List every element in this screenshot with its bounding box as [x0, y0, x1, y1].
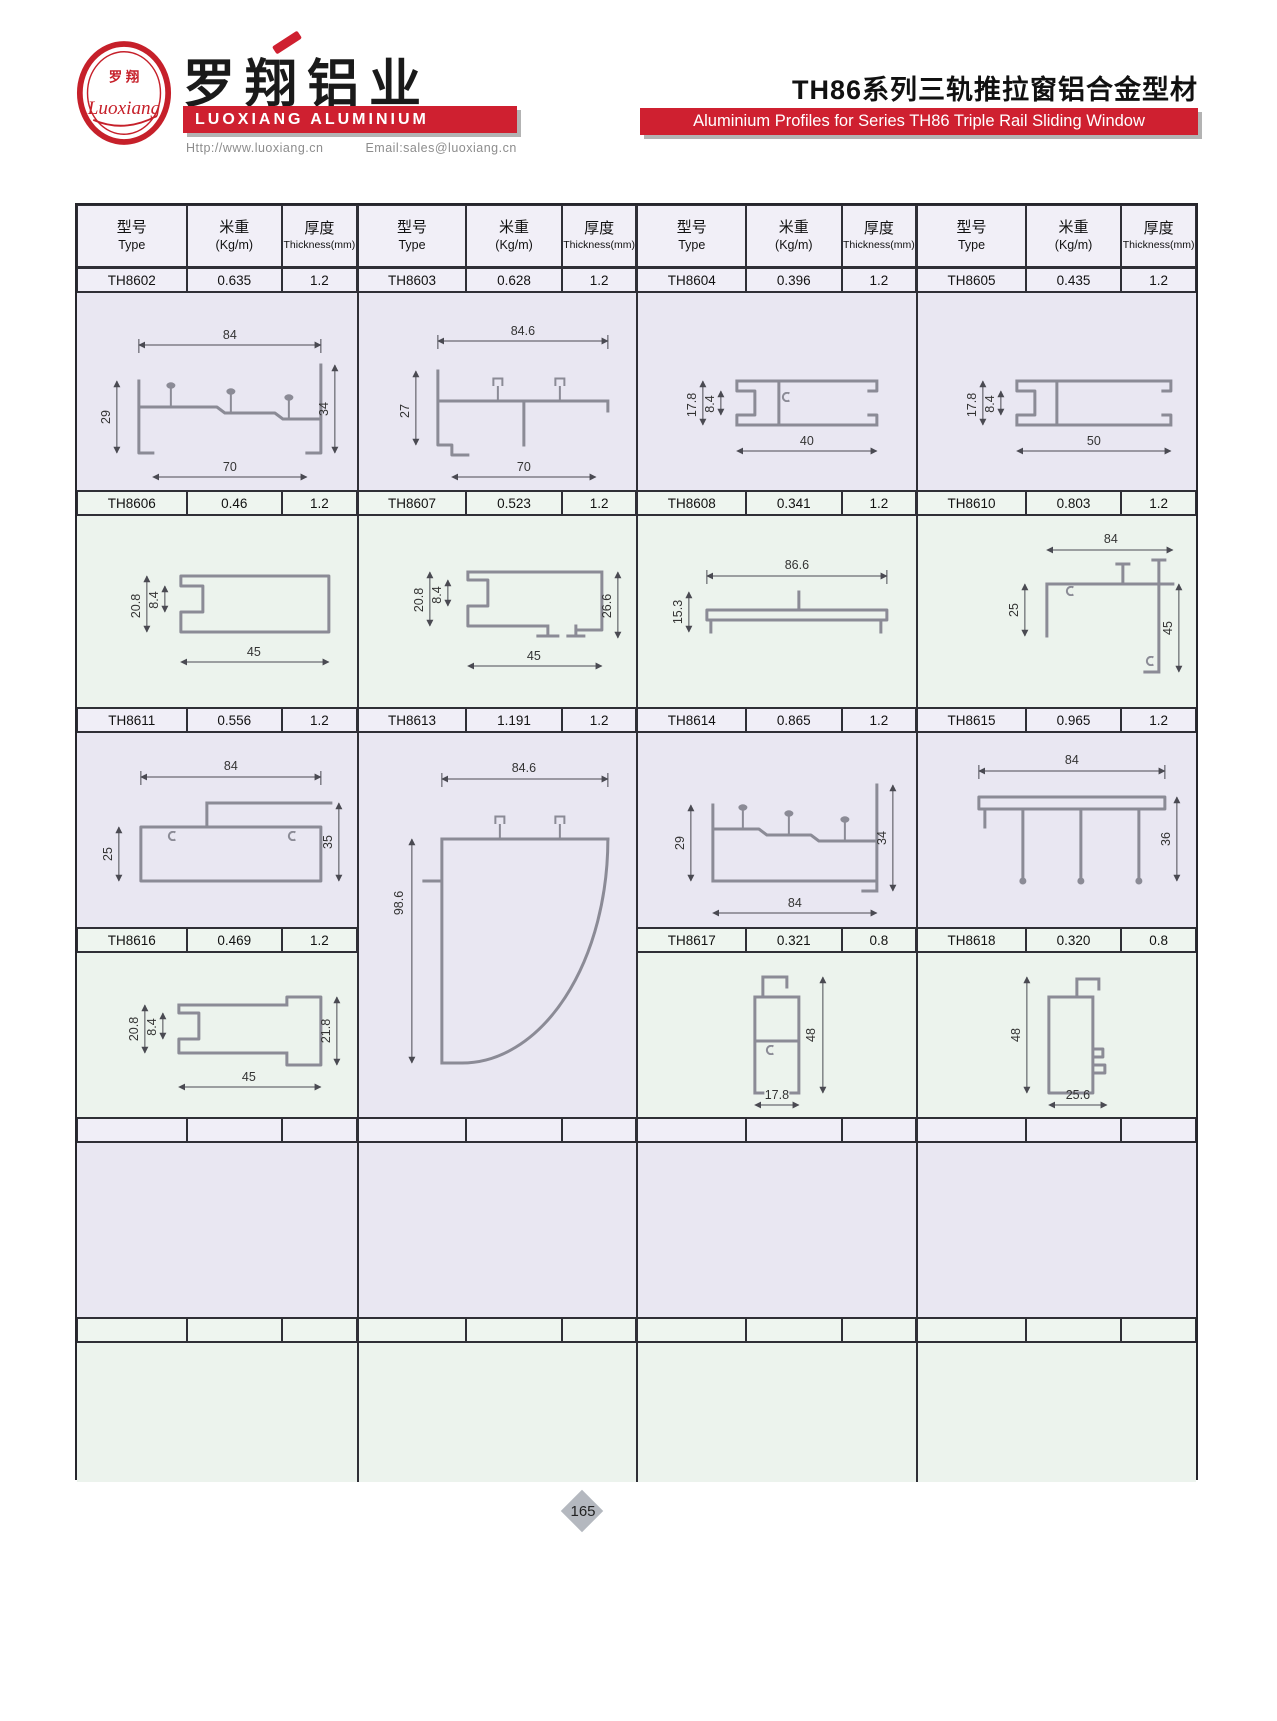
weight-cell: 0.321 — [746, 927, 842, 953]
col-header-weight: 米重(Kg/m) — [187, 205, 283, 267]
profile-drawing-th8615: 84 36 — [916, 733, 1196, 927]
type-cell: TH8605 — [916, 267, 1026, 293]
svg-text:8.4: 8.4 — [145, 1018, 159, 1035]
thickness-cell: 1.2 — [1121, 707, 1196, 733]
empty-cell — [916, 1117, 1026, 1143]
empty-cell — [1026, 1317, 1122, 1343]
svg-text:17.8: 17.8 — [965, 393, 979, 417]
page-number: 165 — [563, 1492, 603, 1532]
empty-drawing-cell — [357, 1343, 637, 1482]
empty-cell — [746, 1117, 842, 1143]
col-header-type: 型号Type — [357, 205, 467, 267]
svg-text:98.6: 98.6 — [392, 891, 406, 915]
weight-cell: 0.396 — [746, 267, 842, 293]
type-cell: TH8617 — [636, 927, 746, 953]
series-title-en: Aluminium Profiles for Series TH86 Tripl… — [693, 112, 1145, 131]
logo-ring-icon — [80, 44, 168, 142]
empty-cell — [562, 1117, 637, 1143]
svg-text:8.4: 8.4 — [983, 395, 997, 412]
empty-cell — [1026, 1117, 1122, 1143]
type-cell: TH8606 — [77, 490, 187, 516]
svg-text:20.8: 20.8 — [129, 594, 143, 618]
weight-cell: 0.635 — [187, 267, 283, 293]
empty-cell — [842, 1117, 917, 1143]
profile-drawing-th8607: 20.8 8.4 26.6 45 — [357, 516, 637, 707]
profile-drawing-th8616: 20.8 8.4 21.8 45 — [77, 953, 357, 1117]
empty-cell — [77, 1317, 187, 1343]
svg-text:29: 29 — [99, 410, 113, 424]
company-logo: 罗 翔 Luoxiang — [76, 40, 172, 146]
weight-cell: 0.556 — [187, 707, 283, 733]
thickness-cell: 1.2 — [282, 267, 357, 293]
empty-cell — [746, 1317, 842, 1343]
weight-cell: 0.46 — [187, 490, 283, 516]
col-header-type: 型号Type — [916, 205, 1026, 267]
svg-text:17.8: 17.8 — [685, 393, 699, 417]
type-cell: TH8616 — [77, 927, 187, 953]
weight-cell: 0.435 — [1026, 267, 1122, 293]
svg-text:45: 45 — [247, 645, 261, 659]
svg-text:35: 35 — [321, 835, 335, 849]
thickness-cell: 1.2 — [842, 707, 917, 733]
svg-text:70: 70 — [517, 460, 531, 474]
profile-drawing-th8605: 17.8 8.4 50 — [916, 293, 1196, 490]
weight-cell: 0.803 — [1026, 490, 1122, 516]
contact-line: Http://www.luoxiang.cnEmail:sales@luoxia… — [186, 141, 559, 155]
svg-text:48: 48 — [1009, 1028, 1023, 1042]
empty-cell — [282, 1317, 357, 1343]
logo-cn-text: 罗 翔 — [109, 68, 140, 84]
thickness-cell: 1.2 — [562, 707, 637, 733]
svg-text:34: 34 — [317, 402, 331, 416]
type-cell: TH8604 — [636, 267, 746, 293]
thickness-cell: 1.2 — [1121, 490, 1196, 516]
profile-drawing-th8614: 29 34 84 — [636, 733, 916, 927]
weight-cell: 0.865 — [746, 707, 842, 733]
type-cell: TH8607 — [357, 490, 467, 516]
col-header-thickness: 厚度Thickness(mm) — [1121, 205, 1196, 267]
svg-text:36: 36 — [1159, 832, 1173, 846]
series-title-cn: TH86系列三轨推拉窗铝合金型材 — [620, 68, 1198, 107]
svg-text:45: 45 — [527, 649, 541, 663]
thickness-cell: 1.2 — [1121, 267, 1196, 293]
svg-text:17.8: 17.8 — [765, 1088, 789, 1102]
empty-drawing-cell — [636, 1343, 916, 1482]
weight-cell: 0.523 — [466, 490, 562, 516]
col-header-thickness: 厚度Thickness(mm) — [842, 205, 917, 267]
col-header-thickness: 厚度Thickness(mm) — [282, 205, 357, 267]
type-cell: TH8602 — [77, 267, 187, 293]
empty-cell — [187, 1317, 283, 1343]
empty-cell — [77, 1117, 187, 1143]
empty-cell — [466, 1117, 562, 1143]
thickness-cell: 1.2 — [842, 267, 917, 293]
svg-text:27: 27 — [398, 404, 412, 418]
weight-cell: 1.191 — [466, 707, 562, 733]
weight-cell: 0.965 — [1026, 707, 1122, 733]
weight-cell: 0.341 — [746, 490, 842, 516]
empty-drawing-cell — [916, 1143, 1196, 1317]
empty-cell — [916, 1317, 1026, 1343]
svg-text:84: 84 — [788, 896, 802, 910]
type-cell: TH8614 — [636, 707, 746, 733]
svg-text:84: 84 — [224, 759, 238, 773]
page-number-text: 165 — [563, 1503, 603, 1520]
svg-text:84: 84 — [223, 328, 237, 342]
series-title-en-banner: Aluminium Profiles for Series TH86 Tripl… — [640, 108, 1198, 135]
svg-text:84.6: 84.6 — [510, 324, 534, 338]
profile-drawing-th8610: 84 25 45 — [916, 516, 1196, 707]
svg-text:20.8: 20.8 — [127, 1017, 141, 1041]
empty-cell — [466, 1317, 562, 1343]
website-text: Http://www.luoxiang.cn — [186, 141, 323, 155]
profile-drawing-th8602: 84 29 34 70 — [77, 293, 357, 490]
type-cell: TH8613 — [357, 707, 467, 733]
empty-drawing-cell — [916, 1343, 1196, 1482]
svg-text:8.4: 8.4 — [703, 395, 717, 412]
col-header-thickness: 厚度Thickness(mm) — [562, 205, 637, 267]
svg-text:8.4: 8.4 — [430, 586, 444, 603]
type-cell: TH8610 — [916, 490, 1026, 516]
empty-cell — [187, 1117, 283, 1143]
svg-text:25: 25 — [1007, 603, 1021, 617]
empty-cell — [1121, 1117, 1196, 1143]
catalog-page: 罗 翔 Luoxiang 罗翔铝业 LUOXIANG ALUMINIUM Htt… — [0, 0, 1277, 1721]
svg-text:48: 48 — [804, 1028, 818, 1042]
type-cell: TH8615 — [916, 707, 1026, 733]
company-name-en-banner: LUOXIANG ALUMINIUM — [183, 106, 517, 133]
empty-cell — [357, 1317, 467, 1343]
profile-drawing-th8604: 17.8 8.4 40 — [636, 293, 916, 490]
empty-drawing-cell — [636, 1143, 916, 1317]
svg-text:84: 84 — [1104, 532, 1118, 546]
profile-drawing-th8603: 84.6 27 70 — [357, 293, 637, 490]
empty-cell — [636, 1117, 746, 1143]
thickness-cell: 1.2 — [842, 490, 917, 516]
svg-text:70: 70 — [223, 460, 237, 474]
svg-text:25: 25 — [101, 847, 115, 861]
profile-drawing-th8617: 48 17.8 — [636, 953, 916, 1117]
col-header-weight: 米重(Kg/m) — [1026, 205, 1122, 267]
type-cell: TH8618 — [916, 927, 1026, 953]
profile-drawing-th8618: 48 25.6 — [916, 953, 1196, 1117]
col-header-type: 型号Type — [636, 205, 746, 267]
empty-cell — [842, 1317, 917, 1343]
thickness-cell: 1.2 — [282, 490, 357, 516]
empty-cell — [636, 1317, 746, 1343]
logo-script-text: Luoxiang — [87, 98, 161, 119]
svg-text:45: 45 — [242, 1070, 256, 1084]
col-header-weight: 米重(Kg/m) — [466, 205, 562, 267]
svg-text:25.6: 25.6 — [1066, 1088, 1090, 1102]
type-cell: TH8608 — [636, 490, 746, 516]
col-header-weight: 米重(Kg/m) — [746, 205, 842, 267]
svg-text:26.6: 26.6 — [600, 594, 614, 618]
type-cell: TH8611 — [77, 707, 187, 733]
email-text: Email:sales@luoxiang.cn — [365, 141, 516, 155]
thickness-cell: 0.8 — [1121, 927, 1196, 953]
thickness-cell: 1.2 — [562, 490, 637, 516]
svg-text:45: 45 — [1161, 621, 1175, 635]
thickness-cell: 1.2 — [282, 707, 357, 733]
weight-cell: 0.628 — [466, 267, 562, 293]
empty-cell — [562, 1317, 637, 1343]
profile-table: 型号Type 米重(Kg/m) 厚度Thickness(mm) 型号Type 米… — [75, 203, 1198, 1480]
profile-drawing-th8611: 84 25 35 — [77, 733, 357, 927]
svg-text:86.6: 86.6 — [785, 558, 809, 572]
empty-drawing-cell — [77, 1143, 357, 1317]
svg-text:29: 29 — [673, 836, 687, 850]
weight-cell: 0.469 — [187, 927, 283, 953]
weight-cell: 0.320 — [1026, 927, 1122, 953]
company-name-en: LUOXIANG ALUMINIUM — [195, 111, 429, 129]
svg-text:40: 40 — [800, 434, 814, 448]
svg-text:50: 50 — [1087, 434, 1101, 448]
empty-drawing-cell — [357, 1143, 637, 1317]
profile-drawing-th8606: 20.8 8.4 45 — [77, 516, 357, 707]
profile-drawing-th8613: 84.6 98.6 — [357, 733, 637, 1117]
empty-drawing-cell — [77, 1343, 357, 1482]
svg-text:20.8: 20.8 — [412, 588, 426, 612]
svg-text:84: 84 — [1065, 753, 1079, 767]
svg-text:8.4: 8.4 — [147, 591, 161, 608]
empty-cell — [357, 1117, 467, 1143]
thickness-cell: 1.2 — [282, 927, 357, 953]
svg-text:34: 34 — [875, 831, 889, 845]
empty-cell — [282, 1117, 357, 1143]
profile-drawing-th8608: 86.6 15.3 — [636, 516, 916, 707]
thickness-cell: 1.2 — [562, 267, 637, 293]
thickness-cell: 0.8 — [842, 927, 917, 953]
svg-text:21.8: 21.8 — [319, 1019, 333, 1043]
svg-text:15.3: 15.3 — [671, 600, 685, 624]
col-header-type: 型号Type — [77, 205, 187, 267]
empty-cell — [1121, 1317, 1196, 1343]
svg-text:84.6: 84.6 — [511, 761, 535, 775]
type-cell: TH8603 — [357, 267, 467, 293]
